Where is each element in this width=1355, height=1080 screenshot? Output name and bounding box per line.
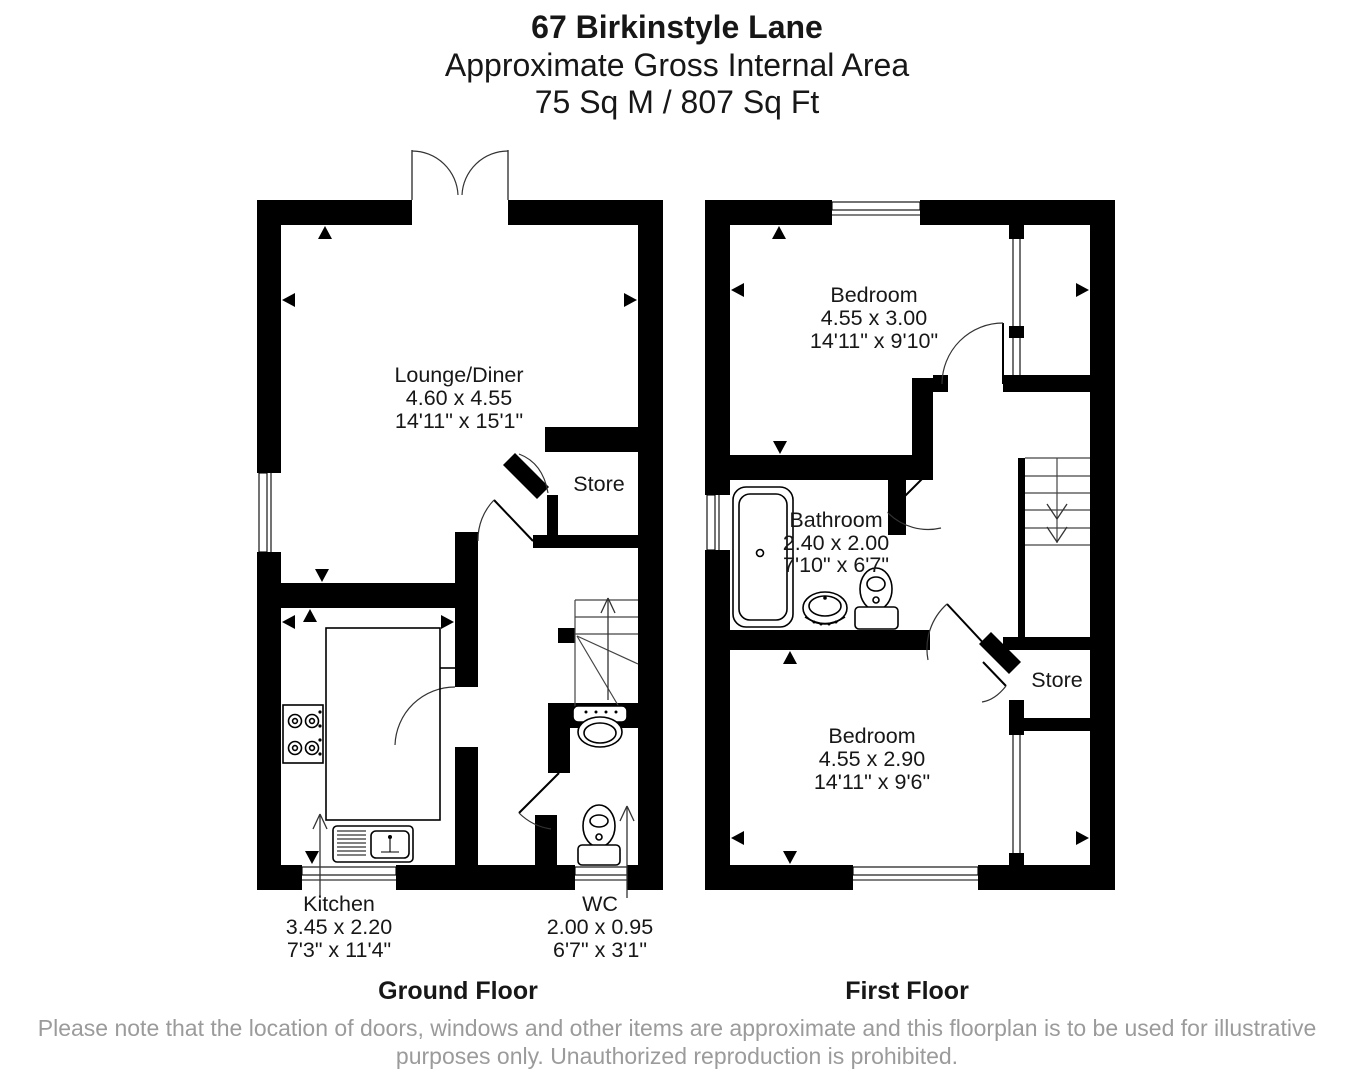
- ground-window-left: [259, 473, 271, 552]
- svg-text:WC: WC: [582, 892, 618, 916]
- area-subtitle: Approximate Gross Internal Area: [445, 47, 909, 83]
- entry-double-door: [412, 150, 508, 200]
- property-address: 67 Birkinstyle Lane: [531, 9, 823, 45]
- bedroom1-partition-panel: [1009, 225, 1024, 375]
- svg-text:7'3" x 11'4": 7'3" x 11'4": [287, 938, 391, 962]
- svg-text:7'10" x 6'7": 7'10" x 6'7": [783, 553, 889, 577]
- disclaimer-line-2: purposes only. Unauthorized reproduction…: [396, 1043, 958, 1069]
- hob-icon: [283, 705, 323, 763]
- svg-text:3.45 x 2.20: 3.45 x 2.20: [286, 915, 392, 939]
- stairs-up-arrow-icon: [601, 598, 615, 700]
- store-door-first: [982, 662, 1006, 702]
- svg-text:4.55 x 2.90: 4.55 x 2.90: [819, 747, 925, 771]
- svg-text:Bedroom: Bedroom: [830, 283, 917, 307]
- floorplan-page: 67 Birkinstyle Lane Approximate Gross In…: [0, 0, 1355, 1080]
- bedroom2-door: [927, 604, 988, 660]
- first-floor-title: First Floor: [845, 977, 969, 1005]
- bedroom1-door: [942, 323, 1003, 384]
- stairs-up: [575, 598, 638, 712]
- svg-text:14'11" x 15'1": 14'11" x 15'1": [395, 409, 523, 433]
- lounge-diner-label: Lounge/Diner 4.60 x 4.55 14'11" x 15'1": [394, 363, 523, 433]
- floorplan-canvas: 67 Birkinstyle Lane Approximate Gross In…: [0, 0, 1355, 1080]
- svg-text:Kitchen: Kitchen: [303, 892, 375, 916]
- svg-text:14'11" x 9'10": 14'11" x 9'10": [810, 329, 938, 353]
- svg-text:Bathroom: Bathroom: [789, 508, 882, 532]
- disclaimer-line-1: Please note that the location of doors, …: [38, 1015, 1317, 1041]
- store-label-first: Store: [1031, 668, 1082, 692]
- wc-toilet-icon: [578, 805, 620, 865]
- bedroom2-label: Bedroom 4.55 x 2.90 14'11" x 9'6": [814, 724, 930, 794]
- svg-text:Bedroom: Bedroom: [828, 724, 915, 748]
- svg-text:Lounge/Diner: Lounge/Diner: [394, 363, 523, 387]
- svg-text:2.00 x 0.95: 2.00 x 0.95: [547, 915, 653, 939]
- first-floor-plan: Bedroom 4.55 x 3.00 14'11" x 9'10" Bathr…: [705, 200, 1115, 1005]
- kitchen-door: [395, 687, 455, 745]
- first-window-left: [707, 495, 719, 550]
- kitchen-counter: [326, 628, 455, 820]
- bedroom1-label: Bedroom 4.55 x 3.00 14'11" x 9'10": [810, 283, 938, 353]
- svg-text:4.60 x 4.55: 4.60 x 4.55: [406, 386, 512, 410]
- first-window-bottom: [853, 867, 978, 880]
- area-value: 75 Sq M / 807 Sq Ft: [535, 84, 820, 120]
- stairs-down: [1018, 458, 1090, 638]
- wc-label: WC 2.00 x 0.95 6'7" x 3'1": [547, 892, 653, 962]
- svg-text:6'7" x 3'1": 6'7" x 3'1": [553, 938, 647, 962]
- bathroom-toilet-icon: [855, 568, 898, 629]
- bathroom-basin-icon: [803, 592, 847, 626]
- ground-window-kitchen: [302, 867, 396, 880]
- ground-floor-title: Ground Floor: [378, 977, 538, 1005]
- svg-text:14'11" x 9'6": 14'11" x 9'6": [814, 770, 930, 794]
- ground-floor-plan: Lounge/Diner 4.60 x 4.55 14'11" x 15'1" …: [257, 150, 663, 1005]
- lounge-hall-door: [478, 500, 533, 541]
- kitchen-label: Kitchen 3.45 x 2.20 7'3" x 11'4": [286, 892, 392, 962]
- sink-icon: [333, 826, 413, 862]
- bathroom-label: Bathroom 2.40 x 2.00 7'10" x 6'7": [783, 508, 889, 577]
- title-block: 67 Birkinstyle Lane Approximate Gross In…: [445, 9, 909, 120]
- wc-basin-icon: [573, 706, 627, 747]
- svg-text:2.40 x 2.00: 2.40 x 2.00: [783, 531, 889, 555]
- svg-text:4.55 x 3.00: 4.55 x 3.00: [821, 306, 927, 330]
- disclaimer: Please note that the location of doors, …: [38, 1015, 1317, 1069]
- first-window-top: [832, 202, 920, 215]
- bedroom2-partition-panel: [1009, 723, 1024, 865]
- ground-window-wc: [575, 867, 627, 880]
- store-label-ground: Store: [573, 472, 624, 496]
